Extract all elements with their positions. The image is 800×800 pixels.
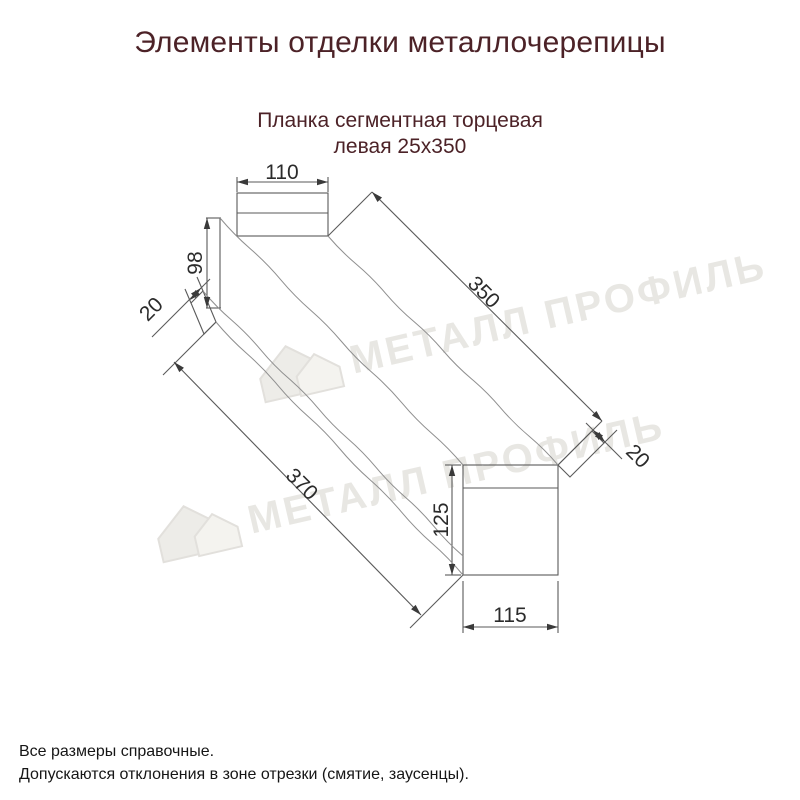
- dim-label-left-hem: 20: [135, 293, 168, 326]
- metal-profil-logo-icon: [254, 336, 344, 405]
- watermark-2: МЕТАЛЛ ПРОФИЛЬ: [152, 397, 669, 564]
- dim-label-right-width: 115: [493, 604, 526, 627]
- part-outline-and-dimension-lines: [152, 177, 622, 633]
- footer-note-2: Допускаются отклонения в зоне отрезки (с…: [19, 763, 469, 786]
- watermark-1: МЕТАЛЛ ПРОФИЛЬ: [254, 237, 771, 404]
- footer-notes: Все размеры справочные. Допускаются откл…: [19, 740, 469, 786]
- footer-note-1: Все размеры справочные.: [19, 740, 469, 763]
- technical-drawing: МЕТАЛЛ ПРОФИЛЬ МЕТАЛЛ ПРОФИЛЬ 110 98 20 …: [0, 0, 800, 800]
- dim-label-top-width: 110: [265, 161, 298, 184]
- metal-profil-logo-icon: [152, 496, 242, 565]
- dim-label-right-height: 125: [430, 502, 453, 537]
- watermark-text: МЕТАЛЛ ПРОФИЛЬ: [346, 244, 771, 383]
- dim-label-left-height: 98: [184, 251, 207, 274]
